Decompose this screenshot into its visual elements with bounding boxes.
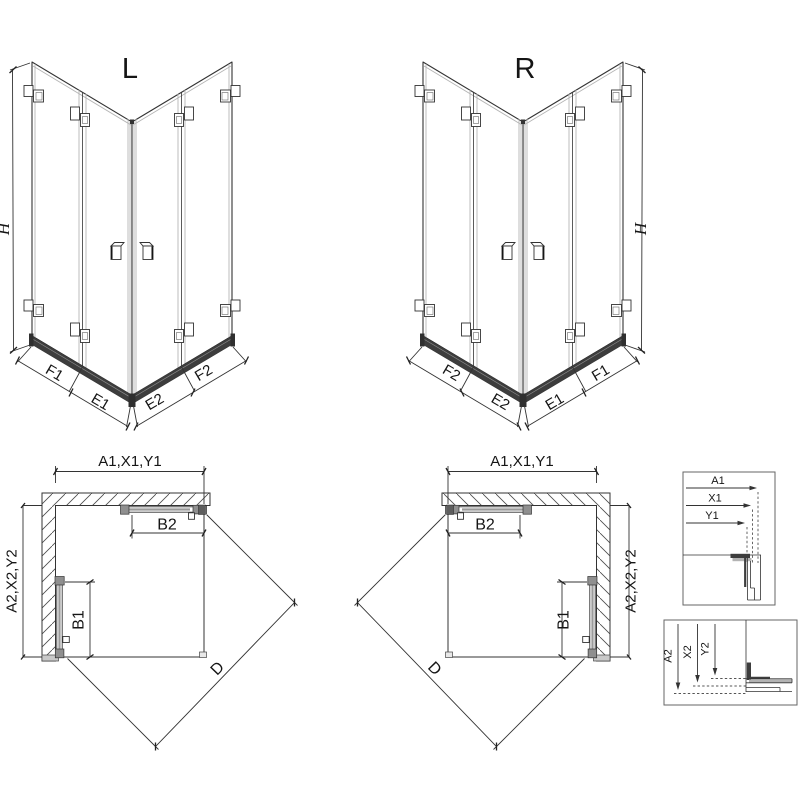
segment-dim-e1: E1: [542, 390, 566, 414]
shower-enclosure-drawing: L H F1 E1 E2 F2 R H F2 E2 E1 F1 A1,X1,Y1…: [0, 0, 800, 800]
detail-dim-a1: A1: [711, 475, 724, 487]
detail-dim-y1: Y1: [705, 510, 718, 522]
door-dim-b2: B2: [157, 517, 177, 534]
plan-view-left: A1,X1,Y1 A2,X2,Y2 B2 B1 D: [4, 453, 298, 751]
detail-dim-x2: X2: [682, 645, 694, 658]
variant-label-right: R: [515, 53, 536, 85]
height-dim-label: H: [631, 221, 650, 236]
depth-dim-label: A2,X2,Y2: [623, 549, 640, 612]
detail-box-width-measurements: A1 X1 Y1: [683, 472, 775, 605]
width-dim-label: A1,X1,Y1: [490, 453, 553, 470]
plan-view-right: A1,X1,Y1 A2,X2,Y2 B2 B1 D: [355, 453, 640, 751]
door-dim-b1: B1: [556, 610, 573, 630]
variant-label-left: L: [122, 53, 138, 85]
segment-dim-f1: F1: [42, 361, 66, 385]
plan-right-geometry: [355, 466, 632, 751]
iso-view-left: L H F1 E1 E2 F2: [0, 53, 249, 431]
detail-dim-a2: A2: [663, 649, 675, 662]
detail-dim-y2: Y2: [700, 642, 712, 655]
height-dim-label: H: [0, 221, 13, 236]
technical-drawing-page: L H F1 E1 E2 F2 R H F2 E2 E1 F1 A1,X1,Y1…: [0, 0, 800, 800]
depth-dim-label: A2,X2,Y2: [4, 549, 21, 612]
segment-dim-f1: F1: [589, 361, 613, 385]
door-dim-b1: B1: [71, 610, 88, 630]
plan-left-geometry: [21, 466, 298, 751]
detail-dim-x1: X1: [708, 493, 721, 505]
width-dim-label: A1,X1,Y1: [98, 453, 161, 470]
diagonal-dim-d: D: [208, 659, 228, 679]
door-dim-b2: B2: [475, 517, 495, 534]
iso-view-right: R H F2 E2 E1 F1: [407, 53, 651, 431]
segment-dim-e1: E1: [88, 390, 112, 414]
detail-box-depth-measurements: A2 X2 Y2: [663, 620, 798, 705]
diagonal-dim-d: D: [424, 659, 444, 679]
